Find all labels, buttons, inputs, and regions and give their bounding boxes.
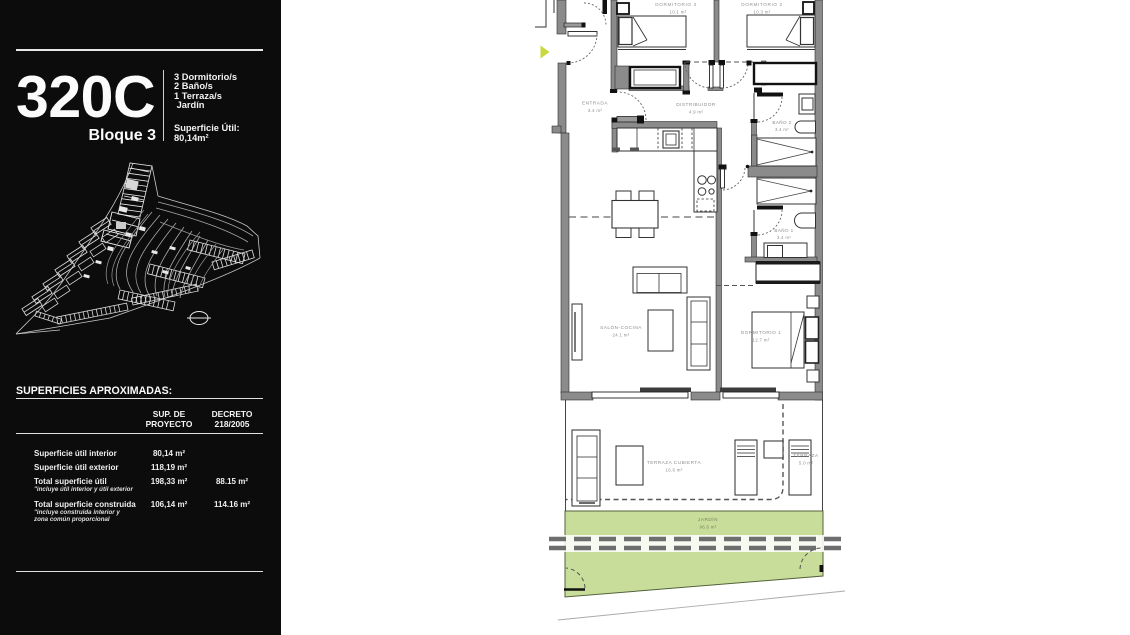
- svg-text:BAÑO 2: BAÑO 2: [772, 119, 791, 125]
- svg-text:SALÓN-COCINA: SALÓN-COCINA: [600, 324, 642, 330]
- svg-text:TERRAZA: TERRAZA: [793, 453, 819, 458]
- svg-text:DORMITORIO 1: DORMITORIO 1: [741, 330, 781, 335]
- svg-text:3.4 m²: 3.4 m²: [775, 127, 789, 132]
- svg-text:3.4 m²: 3.4 m²: [588, 108, 602, 113]
- svg-text:12.7 m²: 12.7 m²: [753, 338, 770, 343]
- svg-text:24.1 m²: 24.1 m²: [613, 333, 630, 338]
- svg-text:DORMITORIO 2: DORMITORIO 2: [741, 2, 783, 7]
- svg-text:DISTRIBUIDOR: DISTRIBUIDOR: [676, 102, 716, 107]
- svg-text:3.4 m²: 3.4 m²: [777, 235, 791, 240]
- svg-text:16.6 m²: 16.6 m²: [666, 468, 683, 473]
- svg-text:DORMITORIO 3: DORMITORIO 3: [655, 2, 697, 7]
- svg-text:10.3 m²: 10.3 m²: [754, 10, 771, 15]
- svg-text:96.6 m²: 96.6 m²: [700, 525, 717, 530]
- svg-text:JARDÍN: JARDÍN: [698, 516, 718, 522]
- svg-text:ENTRADA: ENTRADA: [582, 101, 608, 106]
- svg-text:10.1 m²: 10.1 m²: [670, 10, 687, 15]
- svg-text:5.0 m²: 5.0 m²: [799, 461, 813, 466]
- svg-text:4.9 m²: 4.9 m²: [689, 110, 703, 115]
- svg-text:TERRAZA CUBIERTA: TERRAZA CUBIERTA: [647, 460, 702, 465]
- svg-text:BAÑO 1: BAÑO 1: [774, 227, 793, 233]
